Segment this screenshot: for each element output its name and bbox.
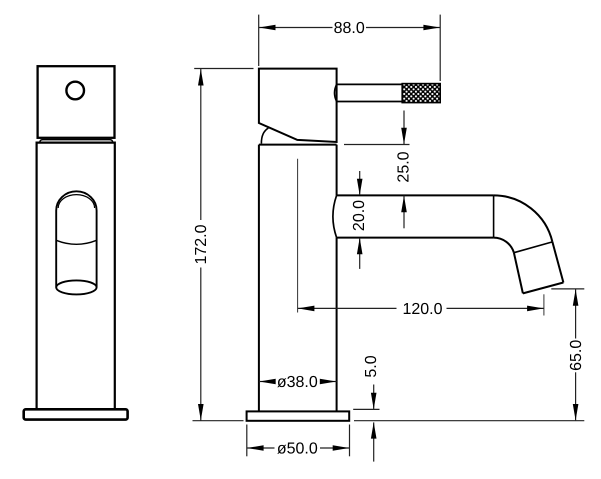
svg-text:120.0: 120.0 [402, 301, 442, 318]
svg-text:65.0: 65.0 [568, 340, 585, 371]
svg-text:ø50.0: ø50.0 [277, 441, 318, 458]
svg-text:172.0: 172.0 [193, 224, 210, 264]
svg-text:ø38.0: ø38.0 [277, 374, 318, 391]
svg-text:88.0: 88.0 [334, 20, 365, 37]
svg-text:5.0: 5.0 [363, 355, 380, 377]
svg-text:25.0: 25.0 [395, 151, 412, 182]
svg-text:20.0: 20.0 [351, 200, 368, 231]
